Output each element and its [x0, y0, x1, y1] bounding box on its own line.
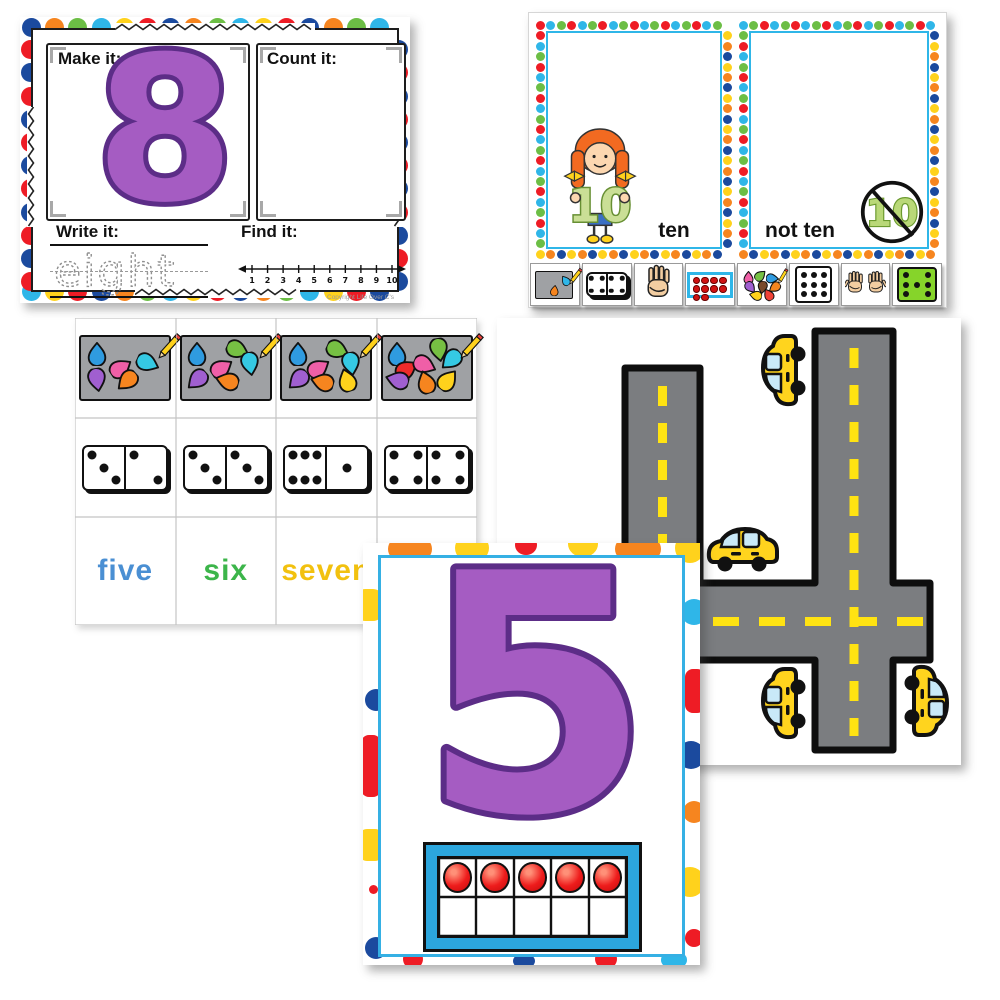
- ribbon-dot: [536, 146, 545, 155]
- big-number-eight: 8: [70, 41, 255, 223]
- pip: [389, 450, 398, 459]
- domino-half: [325, 447, 367, 489]
- eraser-mat: [280, 335, 372, 401]
- trace-word: eight: [54, 250, 204, 296]
- ribbon-dot: [895, 21, 904, 30]
- pip: [903, 282, 909, 288]
- pip: [289, 450, 298, 459]
- eraser-icon: [335, 368, 359, 392]
- ten-frame-cell: [589, 858, 626, 897]
- svg-text:9: 9: [374, 276, 380, 285]
- big-polka-dot: [369, 885, 378, 894]
- ribbon-dot: [853, 250, 862, 259]
- ribbon-dot: [930, 73, 939, 82]
- number-word-seven: seven: [276, 517, 377, 625]
- ribbon-dot: [536, 31, 545, 40]
- ribbon-dot: [661, 21, 670, 30]
- svg-text:10: 10: [386, 276, 398, 285]
- svg-text:8: 8: [358, 276, 364, 285]
- copyright-text: Copyright Life Over C's: [327, 294, 394, 301]
- write-it-label: Write it:: [56, 222, 119, 242]
- mini-card-seven-dot-die[interactable]: [892, 263, 942, 306]
- pip: [154, 476, 163, 485]
- ribbon-dot: [930, 156, 939, 165]
- domino-half: [588, 274, 606, 295]
- pip: [600, 289, 605, 294]
- ribbon-dot: [874, 21, 883, 30]
- ten-frame-cell: [589, 897, 626, 936]
- domino-half: [124, 447, 166, 489]
- trace-word-text: eight: [54, 246, 176, 297]
- ribbon-dot: [739, 229, 748, 238]
- ribbon-dot: [536, 73, 545, 82]
- mini-counter: [710, 285, 718, 293]
- ribbon-dot: [822, 250, 831, 259]
- ribbon-dot: [930, 135, 939, 144]
- ribbon-dot: [536, 187, 545, 196]
- ribbon-dot: [619, 21, 628, 30]
- ribbon-dot: [640, 250, 649, 259]
- hand-four-fingers-icon: [643, 264, 673, 305]
- ribbon-dot: [885, 21, 894, 30]
- svg-text:2: 2: [265, 276, 271, 285]
- domino-4-4: [586, 272, 628, 297]
- not-ten-panel-inner: not ten 10: [749, 31, 929, 249]
- ribbon-dot: [536, 42, 545, 51]
- ribbon-dot: [536, 83, 545, 92]
- domino-half: [84, 447, 124, 489]
- ribbon-dot: [864, 21, 873, 30]
- ten-frame-cell: [551, 897, 588, 936]
- worksheet-card-number-8[interactable]: Make it: Count it: 8 Write it: eight Fin…: [20, 17, 410, 303]
- eraser-mat: [79, 335, 171, 401]
- ribbon-dot: [692, 21, 701, 30]
- ribbon-dot: [781, 21, 790, 30]
- ribbon-dot: [930, 31, 939, 40]
- red-counter: [480, 862, 509, 893]
- big-polka-dot: [683, 801, 700, 823]
- ten-frame: [423, 842, 642, 952]
- domino-cell-five: [75, 418, 176, 517]
- mini-counter: [719, 277, 727, 285]
- mini-counter: [719, 285, 727, 293]
- eraser-icon: [185, 368, 209, 392]
- ribbon-dot: [739, 250, 748, 259]
- pip: [821, 282, 827, 288]
- pip: [230, 450, 239, 459]
- ribbon-dot: [930, 177, 939, 186]
- ribbon-dot: [671, 250, 680, 259]
- ribbon-dot: [874, 250, 883, 259]
- ribbon-dot: [702, 21, 711, 30]
- ribbon-dot: [723, 167, 732, 176]
- ten-frame-cell: [514, 858, 551, 897]
- mini-card-two-hands[interactable]: [841, 263, 891, 306]
- ribbon-dot: [812, 250, 821, 259]
- pip: [620, 276, 625, 281]
- pip: [620, 289, 625, 294]
- number-word-five: five: [75, 517, 176, 625]
- ten-panel: 10 ten: [536, 21, 732, 259]
- domino-half: [225, 447, 267, 489]
- big-number-five: 5: [401, 558, 671, 833]
- mini-counter: [693, 277, 701, 285]
- ribbon-dot: [739, 31, 748, 40]
- domino-3-3: [183, 445, 269, 491]
- ribbon-dot: [723, 229, 732, 238]
- ribbon-dot: [926, 21, 935, 30]
- pip: [413, 450, 422, 459]
- ribbon-dot: [853, 21, 862, 30]
- pip: [112, 476, 121, 485]
- ribbon-dot: [791, 250, 800, 259]
- pip: [188, 450, 197, 459]
- eraser-icon: [215, 369, 239, 393]
- svg-text:6: 6: [327, 276, 333, 285]
- ribbon-dot: [930, 146, 939, 155]
- pip: [413, 476, 422, 485]
- not-ten-panel: not ten 10: [739, 21, 939, 259]
- pip: [200, 463, 209, 472]
- ribbon-dot: [536, 115, 545, 124]
- ribbon-dot: [739, 42, 748, 51]
- eraser-icon: [310, 370, 334, 394]
- ribbon-dot: [930, 187, 939, 196]
- crossed-out-ten-clipart: 10: [859, 179, 925, 245]
- eraser-icon: [762, 288, 775, 301]
- ten-frame-column: [476, 858, 513, 936]
- ribbon-dot: [770, 21, 779, 30]
- mini-counter: [710, 277, 718, 285]
- corner-ornament: [386, 201, 402, 217]
- ten-frame-cell: [476, 897, 513, 936]
- ribbon-dot: [833, 21, 842, 30]
- ribbon-dot: [723, 187, 732, 196]
- mini-card-hand-four[interactable]: [634, 263, 684, 306]
- pip: [289, 476, 298, 485]
- ten-frame-cell: [439, 897, 476, 936]
- seven-dot-die: [897, 267, 937, 302]
- ribbon-dot: [749, 250, 758, 259]
- red-counter: [593, 862, 622, 893]
- ten-frame-column: [551, 858, 588, 936]
- ribbon-dot: [640, 21, 649, 30]
- ribbon-dot: [536, 52, 545, 61]
- pip: [821, 272, 827, 278]
- corner-ornament: [260, 201, 276, 217]
- pip: [242, 463, 251, 472]
- ribbon-dot: [578, 21, 587, 30]
- ten-label: ten: [628, 219, 720, 243]
- pip: [100, 463, 109, 472]
- pip: [455, 476, 464, 485]
- domino-half: [185, 447, 225, 489]
- pip: [301, 476, 310, 485]
- ribbon-dot: [578, 250, 587, 259]
- ribbon-dot: [536, 198, 545, 207]
- red-counter: [443, 862, 472, 893]
- ribbon-dot: [723, 125, 732, 134]
- pip: [431, 450, 440, 459]
- ribbon-dot: [630, 21, 639, 30]
- pip: [313, 450, 322, 459]
- ribbon-dot: [739, 94, 748, 103]
- two-hands-icon: [845, 270, 886, 300]
- girl-number-ten: 10: [569, 179, 632, 232]
- eraser-mat-cell-eight: [377, 318, 478, 418]
- ten-frame-column: [439, 858, 476, 936]
- ten-frame-cell: [514, 897, 551, 936]
- pip: [811, 282, 817, 288]
- domino-4-4: [384, 445, 470, 491]
- ribbon-dot: [749, 21, 758, 30]
- mini-counter: [701, 277, 709, 285]
- ribbon-dot: [930, 42, 939, 51]
- pip: [212, 476, 221, 485]
- ribbon-dot: [739, 115, 748, 124]
- taxi-bottom-left: [763, 669, 806, 737]
- ribbon-dot: [671, 21, 680, 30]
- ribbon-dot: [930, 167, 939, 176]
- ribbon-dot: [930, 83, 939, 92]
- pip: [903, 272, 909, 278]
- svg-text:5: 5: [311, 276, 317, 285]
- ribbon-dot: [546, 21, 555, 30]
- ribbon-dot: [723, 31, 732, 40]
- mini-ten-frame: [687, 272, 733, 298]
- ribbon-dot: [567, 250, 576, 259]
- ribbon-dot: [723, 73, 732, 82]
- svg-text:4: 4: [296, 276, 302, 285]
- ribbon-dot: [739, 156, 748, 165]
- ribbon-dot: [536, 94, 545, 103]
- domino-6-1: [283, 445, 369, 491]
- ribbon-dot: [536, 125, 545, 134]
- eraser-icon: [286, 368, 310, 392]
- ten-panel-inner: 10 ten: [546, 31, 722, 249]
- ribbon-dot: [833, 250, 842, 259]
- ribbon-dot: [760, 250, 769, 259]
- mini-card-nine-dot-card[interactable]: [789, 263, 839, 306]
- ribbon-dot: [739, 187, 748, 196]
- corner-ornament: [50, 201, 66, 217]
- ten-frame-cell: [551, 858, 588, 897]
- ribbon-dot: [536, 250, 545, 259]
- number-line: 1 2 3 4 5 6 7 8 9 10: [238, 261, 406, 287]
- ribbon-dot: [930, 239, 939, 248]
- ribbon-dot: [723, 198, 732, 207]
- sorting-cards-strip: [530, 263, 944, 306]
- ribbon-dot: [791, 21, 800, 30]
- ribbon-dot: [536, 219, 545, 228]
- ribbon-dot: [760, 21, 769, 30]
- taxi-bottom-right: [905, 667, 948, 735]
- ribbon-dot: [598, 21, 607, 30]
- pip: [600, 276, 605, 281]
- svg-text:1: 1: [249, 276, 255, 285]
- pip: [88, 450, 97, 459]
- ribbon-dot: [843, 250, 852, 259]
- ribbon-dot: [650, 21, 659, 30]
- ribbon-dot: [739, 52, 748, 61]
- count-it-label: Count it:: [267, 49, 337, 69]
- domino-3-2: [82, 445, 168, 491]
- big-number-eight-glyph: 8: [95, 17, 234, 247]
- pip: [821, 291, 827, 297]
- ribbon-dot: [536, 239, 545, 248]
- eraser-icon: [85, 368, 109, 392]
- pip: [389, 476, 398, 485]
- big-number-five-glyph: 5: [421, 543, 651, 888]
- ribbon-dot: [905, 21, 914, 30]
- domino-cell-seven: [276, 418, 377, 517]
- big-polka-dot: [685, 669, 700, 713]
- ribbon-dot: [739, 63, 748, 72]
- ribbon-dot: [770, 250, 779, 259]
- domino-half: [426, 447, 468, 489]
- not-ten-label: not ten: [765, 219, 835, 243]
- pip: [914, 282, 920, 288]
- ribbon-dot: [723, 63, 732, 72]
- ribbon-dot: [536, 208, 545, 217]
- ribbon-dot: [930, 229, 939, 238]
- ribbon-dot: [739, 146, 748, 155]
- mini-card-ten-frame[interactable]: [685, 263, 735, 306]
- ribbon-dot: [916, 21, 925, 30]
- svg-text:3: 3: [280, 276, 286, 285]
- ribbon-dot: [723, 219, 732, 228]
- ribbon-dot: [702, 250, 711, 259]
- find-it-label: Find it:: [241, 222, 298, 242]
- handwriting-lines: eight: [50, 244, 208, 298]
- ribbon-dot: [822, 21, 831, 30]
- taxi-middle: [709, 529, 777, 572]
- ribbon-dot: [723, 42, 732, 51]
- ribbon-dot: [930, 104, 939, 113]
- nine-dot-card: [795, 266, 832, 303]
- pip: [130, 450, 139, 459]
- zigzag-decoration: [27, 107, 37, 227]
- pip: [811, 272, 817, 278]
- ribbon-dot: [801, 250, 810, 259]
- pip: [313, 476, 322, 485]
- ribbon-dot: [885, 250, 894, 259]
- ribbon-dot: [739, 219, 748, 228]
- ribbon-dot: [723, 177, 732, 186]
- ribbon-dot: [536, 135, 545, 144]
- ribbon-dot: [723, 104, 732, 113]
- ribbon-dot: [739, 208, 748, 217]
- pip: [925, 282, 931, 288]
- ribbon-dot: [916, 250, 925, 259]
- ribbon-dot: [723, 135, 732, 144]
- ribbon-dot: [739, 83, 748, 92]
- big-polka-dot: [685, 929, 700, 947]
- ribbon-dot: [588, 21, 597, 30]
- ten-frame-cell: [476, 858, 513, 897]
- worksheet-preview-collage: Make it: Count it: 8 Write it: eight Fin…: [0, 0, 1000, 1000]
- ribbon-dot: [723, 115, 732, 124]
- ribbon-dot: [723, 94, 732, 103]
- ribbon-dot: [609, 250, 618, 259]
- ribbon-dot: [598, 250, 607, 259]
- ribbon-dot: [739, 239, 748, 248]
- red-counter: [555, 862, 584, 893]
- ribbon-dot: [567, 21, 576, 30]
- eraser-icon: [549, 285, 560, 296]
- pip: [925, 272, 931, 278]
- ribbon-dot: [739, 125, 748, 134]
- ribbon-dot: [650, 250, 659, 259]
- pip: [431, 476, 440, 485]
- mini-counter: [693, 294, 701, 302]
- domino-half: [606, 274, 626, 295]
- ribbon-dot: [557, 250, 566, 259]
- pip: [925, 291, 931, 297]
- ribbon-dot: [682, 21, 691, 30]
- ribbon-dot: [609, 21, 618, 30]
- ribbon-dot: [739, 167, 748, 176]
- domino-cell-six: [176, 418, 277, 517]
- eraser-icon: [385, 368, 409, 392]
- five-card-inner-panel: 5: [378, 555, 685, 957]
- ribbon-dot: [930, 52, 939, 61]
- ribbon-dot: [739, 135, 748, 144]
- taxi-top: [763, 336, 806, 404]
- ribbon-dot: [723, 156, 732, 165]
- ribbon-dot: [843, 21, 852, 30]
- mini-card-eraser-pile[interactable]: [737, 263, 787, 306]
- ribbon-dot: [930, 115, 939, 124]
- ten-frame-cell: [439, 858, 476, 897]
- eraser-icon: [749, 289, 762, 302]
- ribbon-dot: [930, 208, 939, 217]
- ribbon-dot: [723, 52, 732, 61]
- ribbon-dot: [926, 250, 935, 259]
- ribbon-dot: [723, 239, 732, 248]
- eraser-pile: [741, 269, 783, 301]
- ribbon-dot: [812, 21, 821, 30]
- pip: [301, 450, 310, 459]
- ten-sort-card[interactable]: 10 ten not ten 10: [528, 12, 947, 308]
- mini-card-domino[interactable]: [582, 263, 632, 306]
- pip: [455, 450, 464, 459]
- ribbon-dot: [557, 21, 566, 30]
- domino-half: [285, 447, 325, 489]
- pip: [254, 476, 263, 485]
- mini-card-work-mat[interactable]: [530, 263, 580, 306]
- ribbon-dot: [739, 177, 748, 186]
- mini-counter: [701, 294, 709, 302]
- domino-half: [386, 447, 426, 489]
- ribbon-dot: [930, 63, 939, 72]
- ribbon-dot: [713, 250, 722, 259]
- eraser-mat-cell-five: [75, 318, 176, 418]
- ribbon-dot: [739, 198, 748, 207]
- ribbon-dot: [713, 21, 722, 30]
- ten-frame-column: [514, 858, 551, 936]
- pip: [589, 289, 594, 294]
- count-it-box: [256, 43, 406, 221]
- eraser-mat-cell-seven: [276, 318, 377, 418]
- red-counter: [518, 862, 547, 893]
- eraser-icon: [115, 369, 139, 393]
- number-five-card[interactable]: 5: [363, 543, 700, 965]
- ribbon-dot: [536, 167, 545, 176]
- ribbon-dot: [546, 250, 555, 259]
- eraser-icon: [436, 368, 460, 392]
- pip: [903, 291, 909, 297]
